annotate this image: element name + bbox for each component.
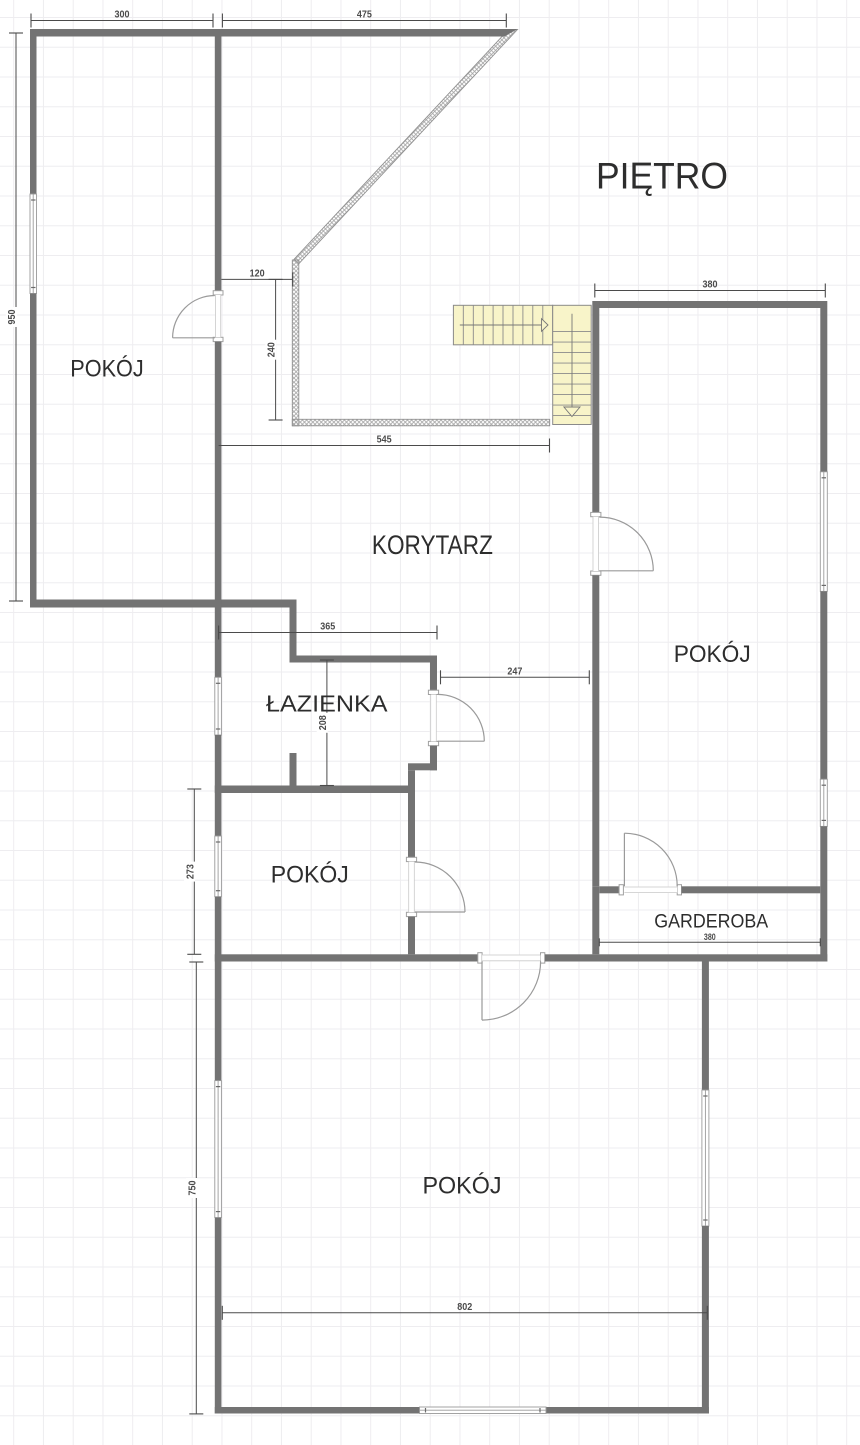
svg-text:273: 273 bbox=[185, 864, 196, 879]
svg-text:380: 380 bbox=[703, 280, 718, 291]
svg-text:PIĘTRO: PIĘTRO bbox=[596, 156, 728, 197]
svg-text:950: 950 bbox=[7, 309, 18, 324]
svg-text:240: 240 bbox=[267, 342, 278, 357]
svg-text:120: 120 bbox=[250, 268, 265, 279]
svg-text:802: 802 bbox=[457, 1302, 472, 1313]
svg-text:POKÓJ: POKÓJ bbox=[70, 356, 144, 383]
svg-text:300: 300 bbox=[115, 10, 130, 21]
svg-text:POKÓJ: POKÓJ bbox=[674, 641, 751, 668]
svg-text:750: 750 bbox=[187, 1180, 198, 1195]
svg-text:ŁAZIENKA: ŁAZIENKA bbox=[266, 691, 388, 717]
svg-text:545: 545 bbox=[377, 435, 392, 446]
svg-text:475: 475 bbox=[357, 10, 372, 21]
svg-text:POKÓJ: POKÓJ bbox=[423, 1172, 502, 1199]
svg-text:208: 208 bbox=[318, 715, 329, 730]
svg-text:KORYTARZ: KORYTARZ bbox=[372, 530, 493, 560]
svg-text:365: 365 bbox=[320, 622, 335, 633]
svg-text:247: 247 bbox=[507, 666, 522, 677]
svg-text:380: 380 bbox=[704, 932, 716, 942]
svg-text:POKÓJ: POKÓJ bbox=[271, 861, 349, 888]
svg-text:GARDEROBA: GARDEROBA bbox=[654, 910, 769, 932]
